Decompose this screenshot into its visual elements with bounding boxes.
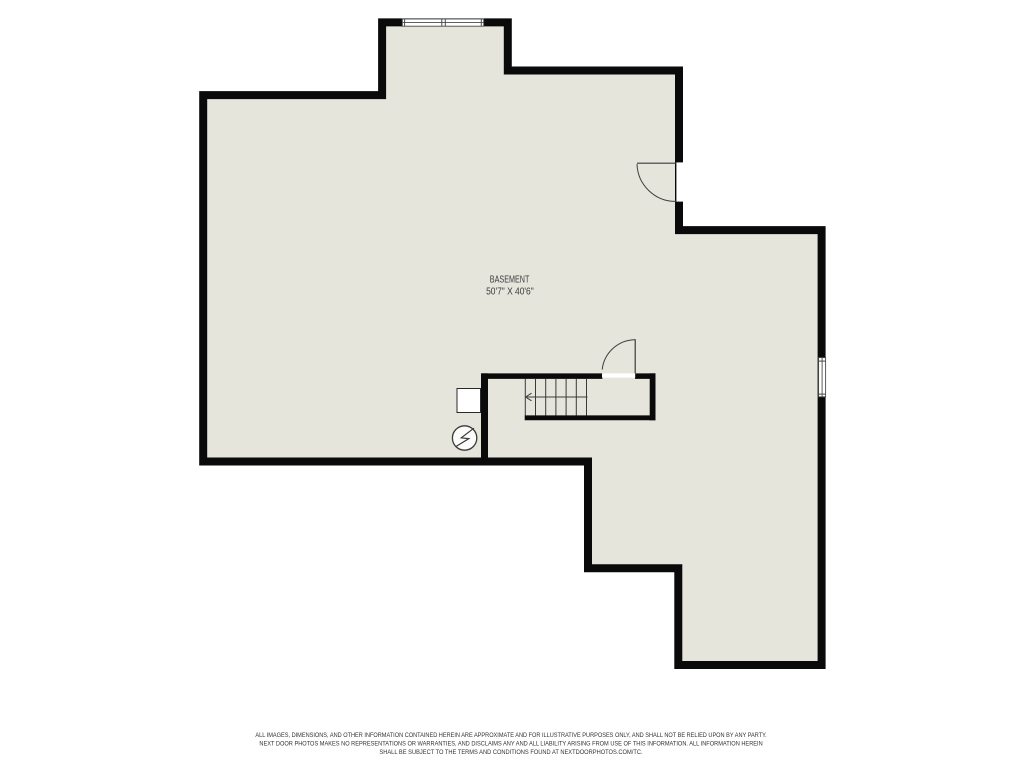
svg-text:NEXT DOOR PHOTOS MAKES NO REPR: NEXT DOOR PHOTOS MAKES NO REPRESENTATION…	[259, 740, 762, 747]
svg-text:50'7" X 40'6": 50'7" X 40'6"	[486, 286, 534, 297]
svg-text:BASEMENT: BASEMENT	[490, 275, 530, 286]
svg-text:SHALL BE SUBJECT TO THE TERMS: SHALL BE SUBJECT TO THE TERMS AND CONDIT…	[379, 749, 642, 756]
svg-text:ALL IMAGES, DIMENSIONS, AND OT: ALL IMAGES, DIMENSIONS, AND OTHER INFORM…	[255, 732, 767, 739]
